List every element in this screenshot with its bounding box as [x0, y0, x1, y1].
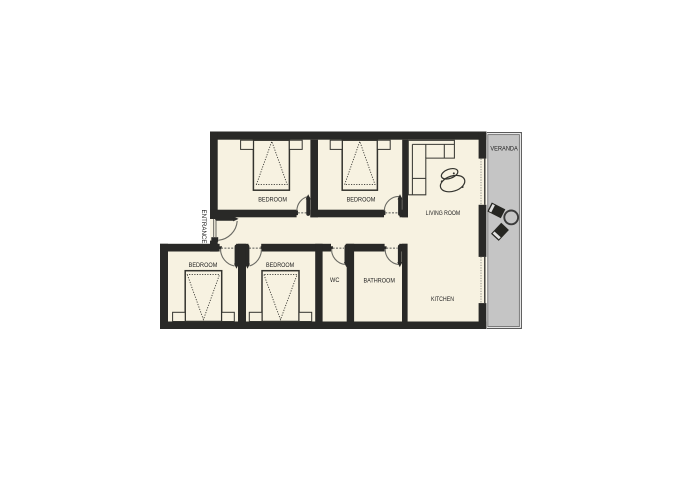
svg-text:BEDROOM: BEDROOM — [266, 262, 295, 269]
svg-text:LIVING ROOM: LIVING ROOM — [426, 210, 461, 217]
svg-text:ENTRANCE: ENTRANCE — [200, 210, 207, 244]
svg-text:BEDROOM: BEDROOM — [189, 262, 218, 269]
svg-text:WC: WC — [330, 277, 339, 284]
svg-text:BATHROOM: BATHROOM — [363, 277, 395, 284]
svg-text:VERANDA: VERANDA — [490, 146, 518, 153]
svg-text:BEDROOM: BEDROOM — [347, 196, 376, 203]
svg-text:BEDROOM: BEDROOM — [258, 196, 287, 203]
svg-text:KITCHEN: KITCHEN — [431, 296, 454, 303]
